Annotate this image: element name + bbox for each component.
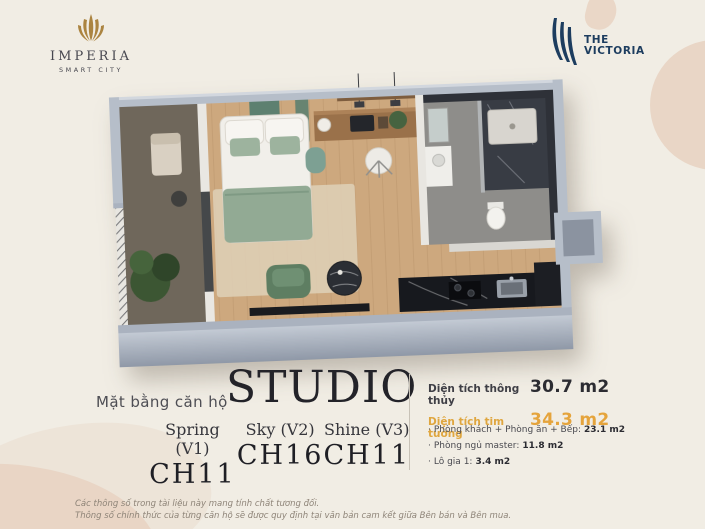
wall-right-lower (560, 262, 572, 307)
variant-sky: Sky (V2) CH16 (237, 420, 324, 490)
room-value: 3.4 m2 (475, 457, 510, 467)
plan-title-prefix: Mặt bằng căn hộ (96, 393, 228, 411)
room-row-master: ·Phòng ngủ master:11.8 m2 (428, 441, 625, 451)
cooktop (449, 281, 482, 300)
variant-list: Spring (V1) CH11 Sky (V2) CH16 Shine (V3… (148, 420, 410, 490)
armchair-cushion (272, 268, 305, 287)
variant-label: Sky (V2) (237, 420, 324, 439)
pillow-green-left (230, 138, 261, 157)
bathroom (415, 90, 559, 253)
room-row-logia: ·Lô gia 1:3.4 m2 (428, 457, 625, 467)
disclaimer-line2: Thông số chính thức của từng căn hộ sẽ đ… (75, 511, 511, 523)
floorplan-svg (90, 56, 607, 384)
variant-spring: Spring (V1) CH11 (148, 420, 237, 490)
disclaimer: Các thông số trong tài liệu này mang tín… (75, 499, 511, 522)
accent-chair (305, 147, 326, 174)
pillow-green-right (270, 136, 301, 155)
pendant-lamp-left (354, 101, 364, 107)
sink-basin (501, 282, 523, 295)
lounge-chair-back (150, 133, 180, 145)
toilet (487, 207, 506, 230)
room-value: 23.1 m2 (584, 425, 625, 435)
room-row-living: ·Phòng khách + Phòng ăn + Bếp:23.1 m2 (428, 425, 625, 435)
area-net-label: Diện tích thông thủy (428, 383, 530, 407)
burner-1 (454, 284, 461, 291)
vertical-divider (409, 374, 410, 470)
variant-label: Spring (V1) (148, 420, 237, 458)
room-label: Phòng ngủ master: (434, 441, 520, 451)
area-net-row: Diện tích thông thủy 30.7 m2 (428, 377, 663, 407)
plan-title-main: STUDIO (226, 366, 417, 410)
imperia-logo-sub: SMART CITY (38, 66, 144, 74)
variant-unit: CH11 (148, 459, 237, 490)
burner-2 (468, 290, 475, 297)
imperia-logo-name: IMPERIA (38, 49, 144, 64)
bullet: · (428, 425, 431, 435)
railing-cap (113, 203, 123, 208)
imperia-logo: IMPERIA SMART CITY (38, 13, 144, 74)
table-lamp (317, 118, 331, 132)
wash-basin (432, 154, 444, 166)
area-net-value: 30.7 m2 (530, 377, 610, 397)
room-area-list: ·Phòng khách + Phòng ăn + Bếp:23.1 m2 ·P… (428, 425, 625, 473)
pendant-lamp-right (390, 100, 400, 106)
variant-shine: Shine (V3) CH11 (323, 420, 410, 490)
variant-label: Shine (V3) (323, 420, 410, 439)
brochure-page: IMPERIA SMART CITY THE VICTORIA (0, 0, 705, 529)
imperia-tulip-icon (73, 13, 109, 43)
room-value: 11.8 m2 (522, 441, 563, 451)
bullet: · (428, 457, 431, 467)
variant-unit: CH16 (237, 440, 324, 471)
room-label: Lô gia 1: (434, 457, 473, 467)
bullet: · (428, 441, 431, 451)
books (378, 116, 388, 128)
disclaimer-line1: Các thông số trong tài liệu này mang tín… (75, 499, 511, 511)
decor-blob-right (650, 40, 705, 170)
tall-cabinet (534, 262, 562, 307)
floorplan-3d-render (90, 56, 607, 384)
room-label: Phòng khách + Phòng ăn + Bếp: (434, 425, 581, 435)
mirror (428, 108, 449, 143)
laptop (350, 115, 375, 132)
utility-box-inner (562, 219, 594, 256)
coffee-table (327, 261, 362, 296)
variant-unit: CH11 (323, 440, 410, 471)
